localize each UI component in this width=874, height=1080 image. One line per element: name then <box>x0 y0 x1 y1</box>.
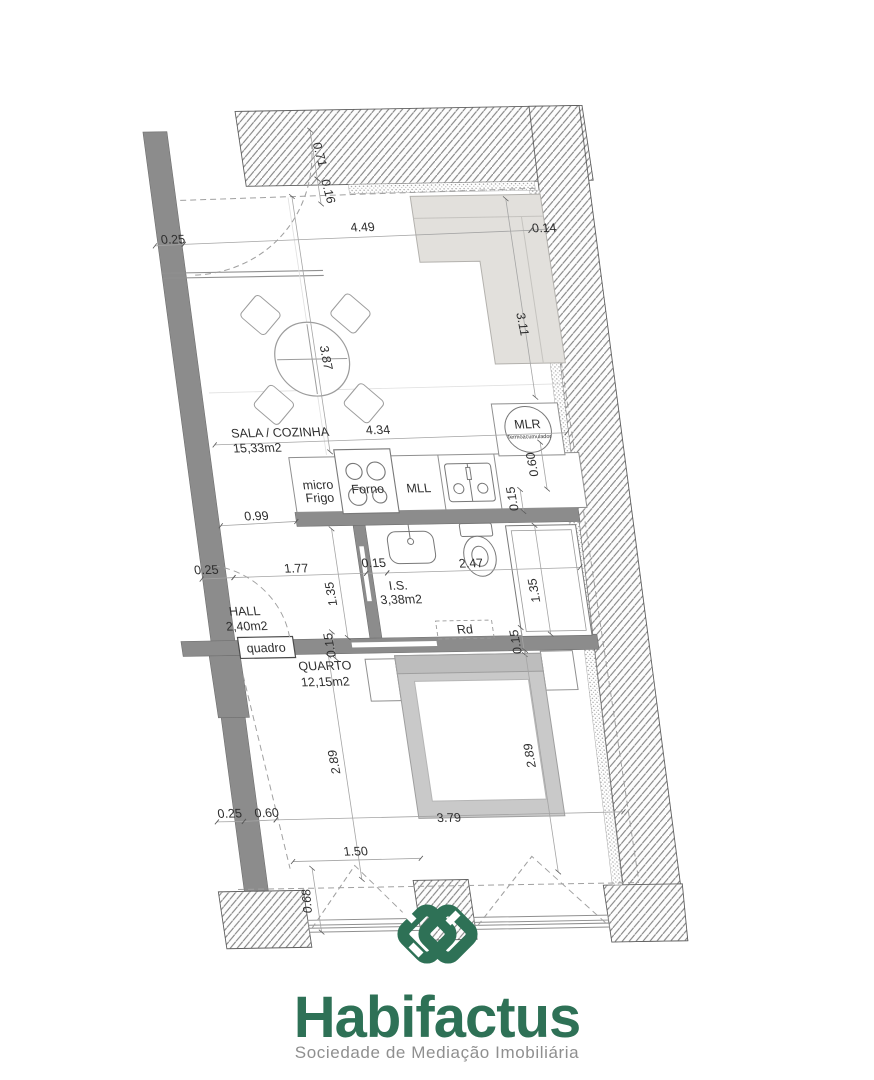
room-area-is: 3,38m2 <box>379 592 423 607</box>
floor-plan: SALA / COZINHA 15,33m2 I.S. 3,38m2 HALL … <box>0 0 874 1080</box>
dim-bath-width: 2.47 <box>458 556 484 570</box>
dim-bath-door: 0.15 <box>361 556 387 570</box>
dim-living-width: 4.49 <box>349 220 375 234</box>
dim-bath-left: 1.35 <box>322 581 340 606</box>
dim-quarto-width: 3.79 <box>436 811 462 825</box>
dim-window-depth: 0.68 <box>299 889 315 914</box>
stove <box>334 449 400 514</box>
window2-sill <box>474 915 609 922</box>
page: SALA / COZINHA 15,33m2 I.S. 3,38m2 HALL … <box>0 0 874 1080</box>
kitchen-sink <box>444 463 496 502</box>
bath-sink <box>386 531 437 564</box>
toilet-tank <box>459 523 493 537</box>
label-mlr: MLR <box>513 417 541 431</box>
label-mll: MLL <box>405 481 431 495</box>
room-label-hall: HALL <box>228 604 261 618</box>
label-termoacumulador: Termoacumulador <box>507 434 552 441</box>
wall-hall-stub <box>209 655 249 717</box>
room-label-is: I.S. <box>388 579 409 593</box>
room-label-quarto: QUARTO <box>297 659 352 674</box>
dim-quarto-left: 2.89 <box>325 749 343 774</box>
dim-kitchen-width: 4.34 <box>365 423 391 437</box>
dim-hall-top: 0.99 <box>243 509 269 523</box>
brand-subtitle: Sociedade de Mediação Imobiliária <box>295 1043 579 1062</box>
dim-left-wall-top: 0.25 <box>160 232 186 246</box>
window2-sill2 <box>475 923 610 929</box>
room-area-quarto: 12,15m2 <box>300 675 351 690</box>
dim-bottom-wall: 0.25 <box>217 807 243 821</box>
walls <box>102 105 707 948</box>
dim-hall-wall: 0.25 <box>193 563 219 577</box>
nightstand-right <box>540 651 578 690</box>
dim-right-wall-top: 0.14 <box>531 221 557 235</box>
label-quadro: quadro <box>246 641 287 656</box>
bed <box>364 651 597 819</box>
label-rd: Rd <box>456 622 474 636</box>
room-area-sala: 15,33m2 <box>232 441 283 456</box>
brand-name: Habifactus <box>294 985 581 1050</box>
dim-hall-width: 1.77 <box>283 561 309 575</box>
room-label-sala: SALA / COZINHA <box>230 425 331 441</box>
dim-bottom-offset: 0.60 <box>254 806 280 820</box>
window2-swing <box>468 855 606 925</box>
wall-bottom-right <box>603 884 690 942</box>
dim-window-width: 1.50 <box>342 844 368 858</box>
sofa <box>410 194 565 365</box>
dining-table <box>236 292 388 426</box>
plan-group: SALA / COZINHA 15,33m2 I.S. 3,38m2 HALL … <box>102 105 707 948</box>
room-area-hall: 2,40m2 <box>225 619 269 634</box>
label-frigo: Frigo <box>305 491 336 505</box>
wall-bottom-left <box>218 890 311 948</box>
label-forno: Forno <box>350 482 385 496</box>
bathroom-fixtures <box>385 522 592 639</box>
